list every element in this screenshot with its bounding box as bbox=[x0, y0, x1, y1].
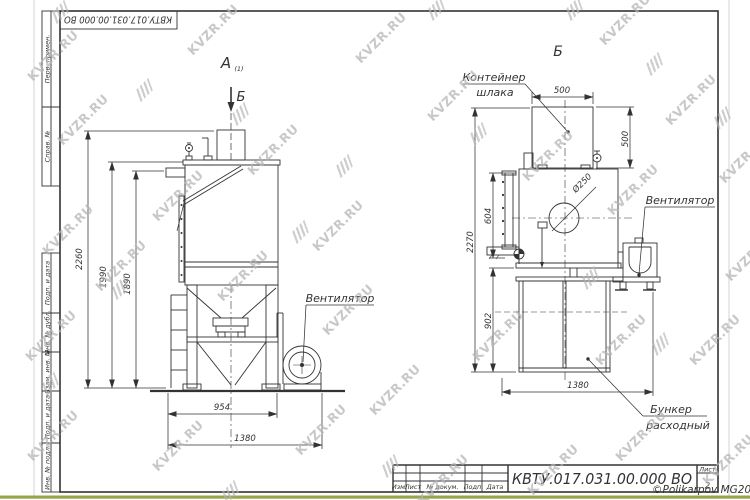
section-label-b: Б bbox=[237, 90, 246, 105]
dim-902: 902 bbox=[484, 313, 494, 329]
fan-label-b: Вентилятор bbox=[646, 194, 715, 207]
support-frame bbox=[171, 285, 280, 390]
col-sign: Подп. bbox=[464, 483, 484, 491]
dimensions-a bbox=[84, 131, 322, 449]
dim-954: 954 bbox=[214, 403, 230, 413]
side-pipe bbox=[166, 168, 185, 177]
dim-604: 604 bbox=[484, 208, 494, 224]
dim-1890: 1890 bbox=[123, 273, 133, 295]
open-lid bbox=[183, 166, 241, 201]
fan-side bbox=[613, 238, 660, 290]
ash-hopper bbox=[187, 288, 276, 337]
hopper-label-1: Бункер bbox=[650, 403, 692, 416]
margin-label: Перв. примен. bbox=[44, 35, 52, 84]
door-strip bbox=[179, 196, 184, 282]
view-b-title: Б bbox=[553, 44, 563, 60]
dim-1380-b: 1380 bbox=[567, 381, 589, 391]
container-valve bbox=[593, 151, 601, 169]
margin-labels: Перв. примен. Справ. № Подп. и дата Инв.… bbox=[44, 35, 52, 490]
dim-500-h: 500 bbox=[621, 131, 631, 147]
bottom-green-strip bbox=[0, 496, 750, 499]
dim-500-w: 500 bbox=[554, 86, 570, 96]
ladder-channel bbox=[502, 171, 516, 249]
inner-frame bbox=[60, 11, 718, 492]
margin-label: Подп. и дата bbox=[44, 261, 52, 305]
dim-1380-a: 1380 bbox=[234, 434, 256, 444]
view-a-texts: А (1) Б 2260 1990 1890 954 1380 Вентилят… bbox=[75, 54, 374, 444]
stamp-text: КВТУ.017.031.00.000 ВО bbox=[64, 14, 172, 25]
drain-valve bbox=[514, 249, 524, 264]
section-arrowhead bbox=[228, 102, 235, 112]
sheet-label: Лист bbox=[698, 466, 716, 474]
col-date: Дата bbox=[486, 483, 504, 491]
fan-front bbox=[277, 313, 321, 390]
margin-label: Подп. и дата bbox=[44, 395, 52, 439]
drawing-canvas: Перв. примен. Справ. № Подп. и дата Инв.… bbox=[0, 0, 750, 500]
hopper-label-2: расходный bbox=[645, 419, 710, 432]
dim-2270: 2270 bbox=[466, 231, 476, 253]
drawing-sheet: Перв. примен. Справ. № Подп. и дата Инв.… bbox=[0, 0, 750, 500]
container-label-2: шлака bbox=[476, 86, 513, 99]
col-doc: № докум. bbox=[425, 483, 458, 491]
container-label-1: Контейнер bbox=[463, 71, 526, 84]
sheet-frame bbox=[34, 0, 729, 497]
fan-label-a: Вентилятор bbox=[306, 292, 375, 305]
margin-label: Инв. № подл. bbox=[44, 445, 52, 490]
probe-rod bbox=[538, 222, 547, 268]
safety-valve bbox=[186, 143, 193, 160]
callout-leaders bbox=[463, 84, 715, 416]
slag-container bbox=[532, 107, 593, 168]
margin-label: Инв. № дубл. bbox=[44, 310, 52, 354]
dim-1990: 1990 bbox=[99, 266, 109, 288]
col-list: Лист bbox=[404, 483, 422, 491]
margin-label: Взам. инв. № bbox=[44, 349, 52, 393]
dim-2260: 2260 bbox=[75, 248, 85, 270]
copyright-watermark: ©Polikarpov MG2021 bbox=[652, 484, 750, 496]
view-a-title: А bbox=[220, 54, 231, 72]
furnace-body-side bbox=[519, 169, 618, 263]
view-a-title-sub: (1) bbox=[234, 65, 243, 73]
view-a bbox=[84, 87, 374, 449]
top-pipe bbox=[202, 138, 212, 160]
view-b-texts: Б Контейнер шлака 500 500 2270 604 902 1… bbox=[463, 44, 715, 432]
supply-bunker bbox=[495, 281, 630, 372]
view-b bbox=[463, 84, 715, 416]
margin-label: Справ. № bbox=[44, 130, 52, 162]
